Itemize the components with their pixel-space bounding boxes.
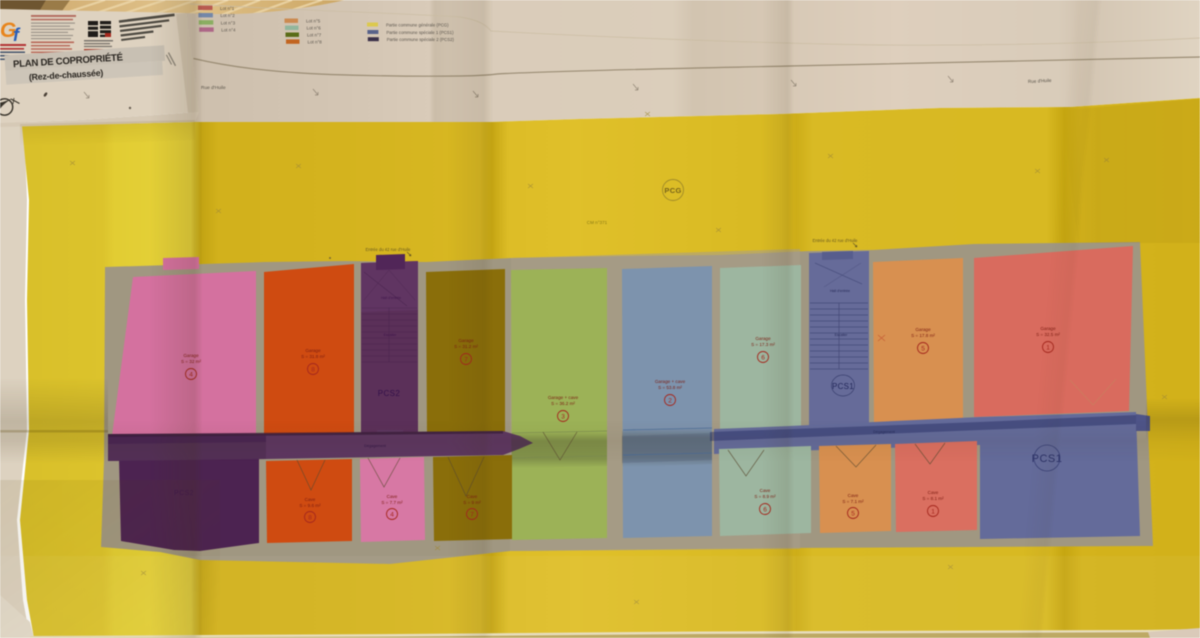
svg-text:S = 53.8 m²: S = 53.8 m² [658,385,682,390]
svg-text:2: 2 [668,398,672,405]
svg-text:Lot n°7: Lot n°7 [307,33,322,38]
svg-text:Rue d'Huile: Rue d'Huile [201,85,226,91]
svg-text:Cave: Cave [848,493,859,498]
svg-text:S = 31.8 m²: S = 31.8 m² [301,354,325,359]
svg-text:Lot n°5: Lot n°5 [306,19,321,24]
svg-text:Garage + cave: Garage + cave [655,379,686,384]
svg-text:Garage: Garage [305,348,321,353]
svg-text:Escalier: Escalier [835,333,849,337]
svg-text:Lot n°3: Lot n°3 [221,20,236,25]
svg-text:Partie commune spéciale 1 (PCS: Partie commune spéciale 1 (PCS1) [386,30,454,35]
svg-text:S = 36.2 m²: S = 36.2 m² [551,401,575,406]
svg-text:Entrée du 42 rue d'Huile: Entrée du 42 rue d'Huile [812,238,858,243]
svg-text:S = 17.8 m²: S = 17.8 m² [911,333,935,338]
svg-text:CM n°371: CM n°371 [587,220,608,225]
svg-text:PCS1: PCS1 [832,382,854,391]
svg-text:Garage + cave: Garage + cave [548,395,579,400]
svg-text:Hall d'entrée: Hall d'entrée [381,296,401,300]
svg-text:PCS2: PCS2 [378,389,401,398]
svg-text:S = 9.6 m²: S = 9.6 m² [299,503,321,508]
svg-text:5: 5 [921,346,925,353]
svg-text:Lot n°4: Lot n°4 [221,28,236,33]
svg-text:S = 8.1 m²: S = 8.1 m² [922,496,944,501]
svg-text:S = 7.1 m²: S = 7.1 m² [842,499,864,504]
svg-text:4: 4 [390,512,394,519]
svg-text:1: 1 [931,509,935,516]
svg-text:Lot n°1: Lot n°1 [220,6,235,11]
svg-text:Hall d'entrée: Hall d'entrée [830,289,850,293]
svg-text:5: 5 [851,511,855,518]
svg-text:Lot n°2: Lot n°2 [220,13,235,18]
svg-text:8: 8 [311,367,315,374]
svg-text:PCG: PCG [664,186,681,195]
svg-text:Cave: Cave [305,497,316,502]
svg-text:Cave: Cave [928,490,939,495]
svg-text:Lot n°6: Lot n°6 [307,26,322,31]
svg-text:3: 3 [561,414,565,421]
svg-text:Lot n°8: Lot n°8 [308,40,323,45]
svg-text:8: 8 [308,515,312,522]
svg-text:Cave: Cave [387,494,398,499]
svg-text:Garage: Garage [915,327,931,332]
svg-text:Entrée du 42 rue d'Huile: Entrée du 42 rue d'Huile [365,247,411,252]
svg-text:S = 7.7 m²: S = 7.7 m² [381,500,403,505]
svg-text:Partie commune générale (PCG): Partie commune générale (PCG) [386,22,449,27]
svg-text:Partie commune spéciale 2 (PCS: Partie commune spéciale 2 (PCS2) [387,37,455,42]
svg-text:Escalier: Escalier [384,333,398,337]
